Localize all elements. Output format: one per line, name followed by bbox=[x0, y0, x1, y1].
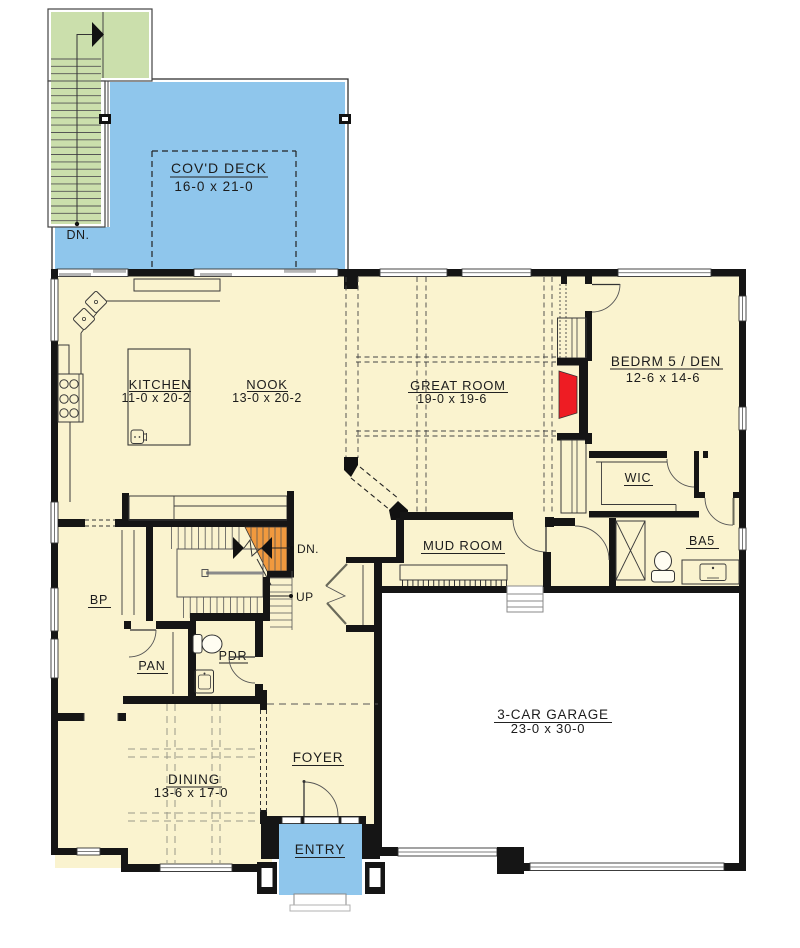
svg-text:ENTRY: ENTRY bbox=[295, 842, 346, 857]
svg-text:WIC: WIC bbox=[625, 471, 652, 485]
svg-text:COV'D DECK: COV'D DECK bbox=[171, 160, 267, 176]
svg-text:PDR: PDR bbox=[219, 649, 248, 663]
svg-text:MUD ROOM: MUD ROOM bbox=[423, 538, 503, 553]
svg-text:NOOK: NOOK bbox=[246, 377, 287, 392]
svg-text:19-0 x 19-6: 19-0 x 19-6 bbox=[417, 392, 487, 406]
svg-text:PAN: PAN bbox=[138, 659, 165, 673]
svg-text:BA5: BA5 bbox=[689, 534, 715, 548]
svg-text:23-0 x 30-0: 23-0 x 30-0 bbox=[511, 721, 586, 736]
svg-text:DN.: DN. bbox=[66, 228, 89, 242]
svg-text:13-6 x 17-0: 13-6 x 17-0 bbox=[154, 785, 229, 800]
svg-text:FOYER: FOYER bbox=[293, 750, 344, 765]
svg-text:3-CAR GARAGE: 3-CAR GARAGE bbox=[497, 707, 609, 722]
svg-text:BEDRM 5 / DEN: BEDRM 5 / DEN bbox=[611, 354, 721, 369]
svg-text:BP: BP bbox=[90, 593, 108, 607]
svg-text:11-0 x 20-2: 11-0 x 20-2 bbox=[122, 391, 191, 405]
svg-text:13-0 x 20-2: 13-0 x 20-2 bbox=[232, 391, 302, 405]
svg-text:DN.: DN. bbox=[297, 542, 319, 556]
svg-text:16-0 x 21-0: 16-0 x 21-0 bbox=[174, 179, 253, 194]
svg-text:UP: UP bbox=[296, 590, 313, 604]
svg-text:KITCHEN: KITCHEN bbox=[129, 377, 192, 392]
svg-text:12-6 x 14-6: 12-6 x 14-6 bbox=[626, 370, 701, 385]
svg-text:GREAT ROOM: GREAT ROOM bbox=[410, 378, 506, 393]
